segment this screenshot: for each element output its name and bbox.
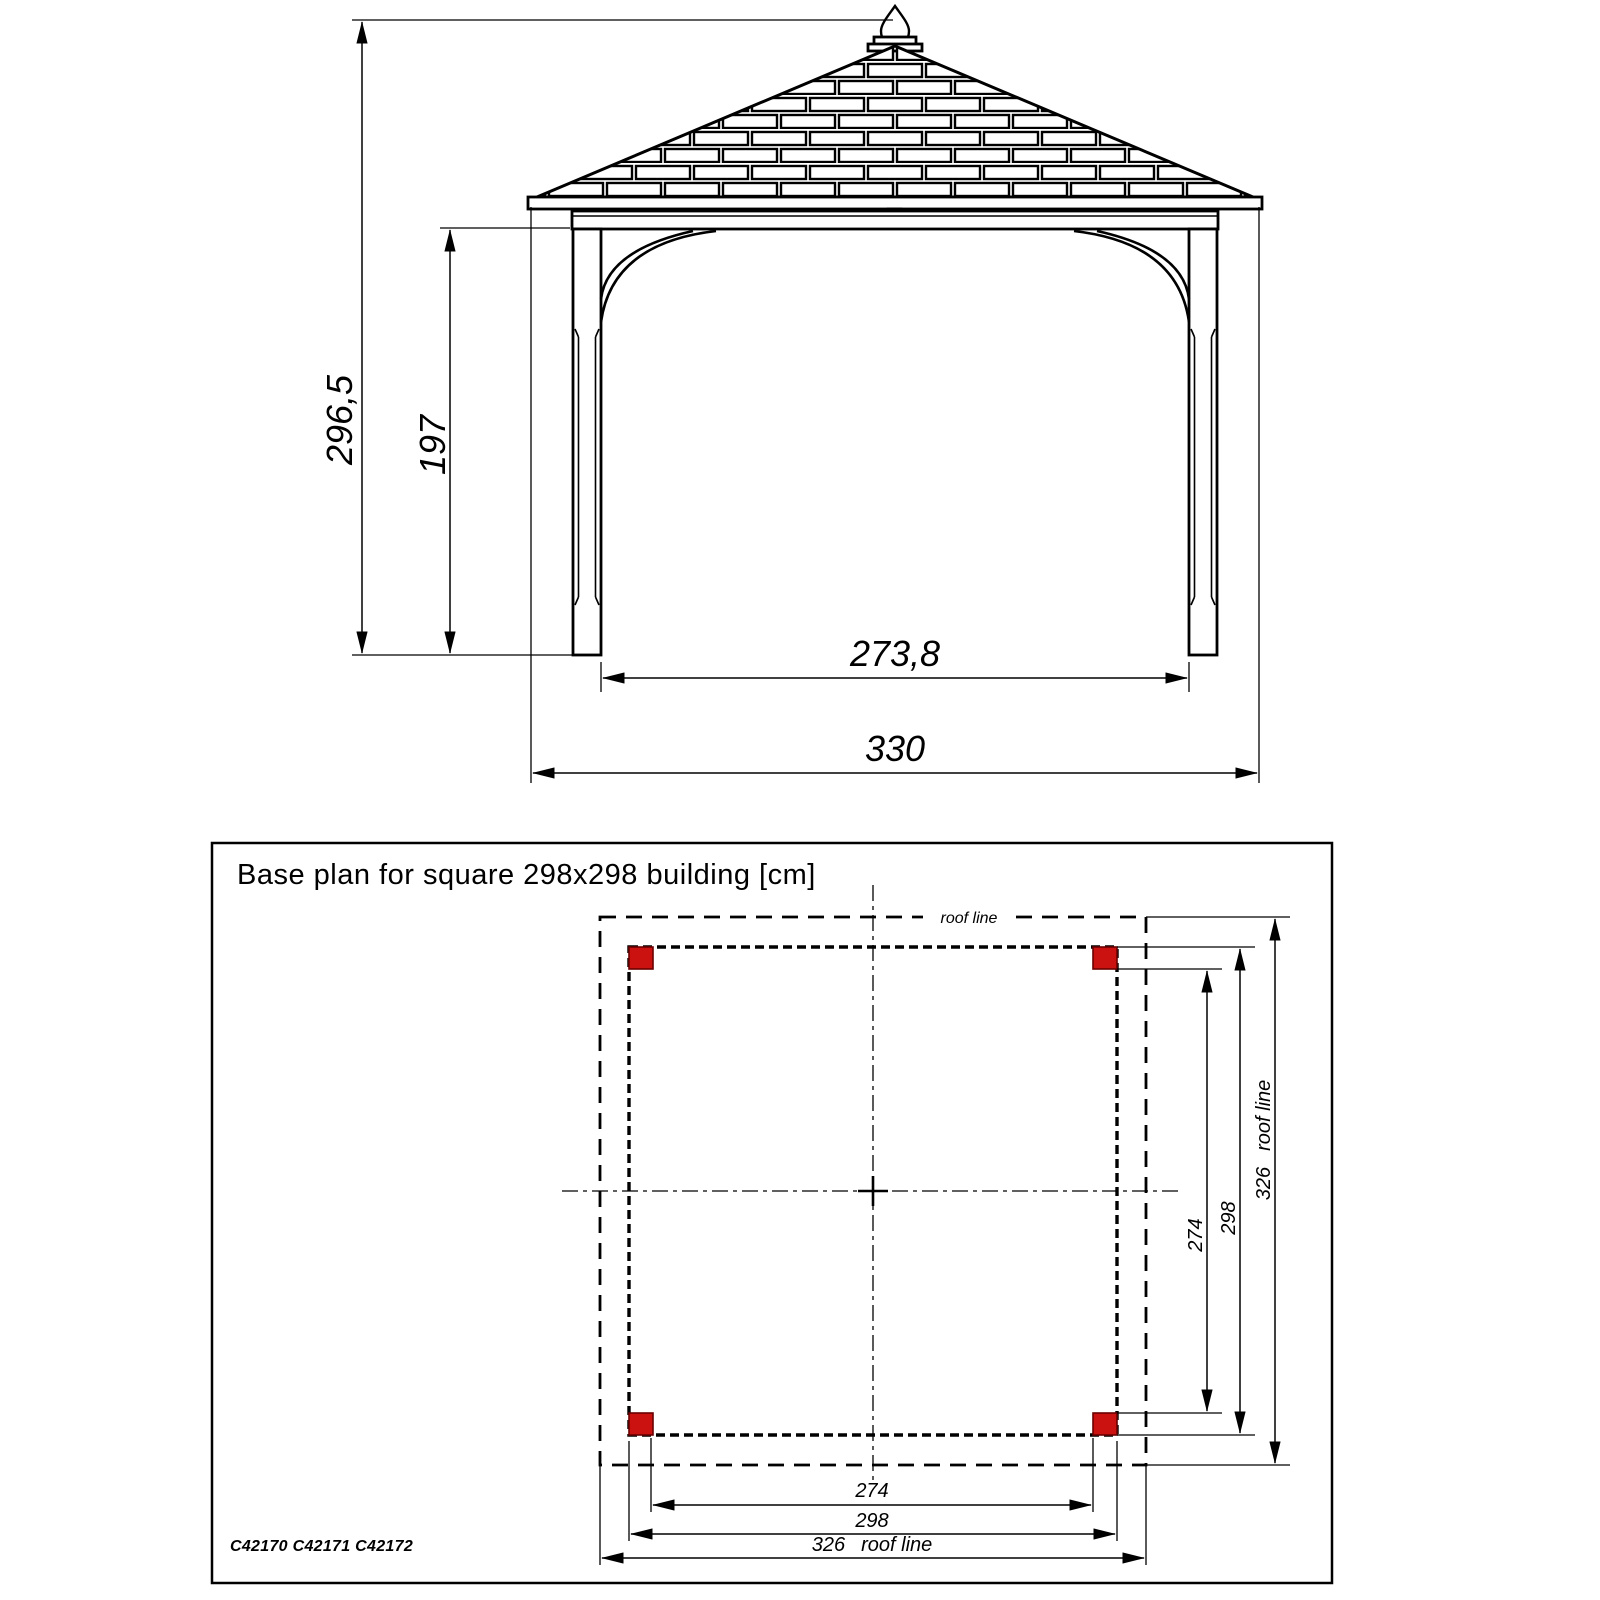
left-brace-outer-curve [601, 231, 716, 322]
drawing-sheet: 296,5 197 273,8 330 Base plan for square… [0, 0, 1600, 1600]
left-post [573, 229, 601, 655]
dim-label-plan-inner-h: 274 [854, 1480, 888, 1502]
right-brace-outer-curve [1074, 231, 1189, 322]
elevation-view: 296,5 197 273,8 330 [319, 6, 1262, 783]
post-marker-top-left [629, 947, 653, 969]
left-post-body [573, 229, 601, 655]
dim-label-plan-building-h: 298 [854, 1510, 888, 1532]
dim-label-plan-roof-h: 326roof line [812, 1534, 933, 1556]
dim-label-plan-roof-v: 326roof line [1253, 1080, 1275, 1201]
ring-beam [572, 211, 1218, 229]
plan-title: Base plan for square 298x298 building [c… [237, 859, 816, 891]
roof-dim-value-h: 326 [812, 1534, 846, 1556]
roof-shingle-triangle [537, 46, 1253, 197]
post-marker-top-right [1093, 947, 1117, 969]
dim-label-inner-width: 273,8 [849, 633, 940, 674]
roof-finial [868, 6, 922, 51]
right-post [1189, 229, 1217, 655]
roof-dim-value-v: 326 [1253, 1166, 1275, 1200]
roof-dim-word-h: roof line [861, 1534, 932, 1556]
dim-label-plan-inner-v: 274 [1185, 1218, 1207, 1252]
base-plan-panel: Base plan for square 298x298 building [c… [212, 843, 1332, 1583]
roof [528, 46, 1262, 216]
post-marker-bottom-left [629, 1413, 653, 1435]
right-brace-inner-curve [1097, 231, 1189, 299]
left-brace-inner-curve [601, 231, 693, 299]
knee-braces [601, 231, 1189, 322]
dim-label-plan-building-v: 298 [1218, 1201, 1240, 1235]
dim-label-post-height: 197 [412, 413, 453, 475]
dim-label-overall-width: 330 [865, 728, 925, 769]
gazebo-technical-drawing: 296,5 197 273,8 330 Base plan for square… [0, 0, 1600, 1600]
beam-body [572, 211, 1218, 229]
right-post-body [1189, 229, 1217, 655]
dim-label-total-height: 296,5 [319, 374, 360, 466]
plan-panel-border [212, 843, 1332, 1583]
product-codes: C42170 C42171 C42172 [230, 1538, 413, 1555]
post-marker-bottom-right [1093, 1413, 1117, 1435]
roof-line-label-top: roof line [941, 910, 998, 927]
roof-dim-word-v: roof line [1253, 1080, 1275, 1151]
roof-fascia-band [528, 197, 1262, 209]
